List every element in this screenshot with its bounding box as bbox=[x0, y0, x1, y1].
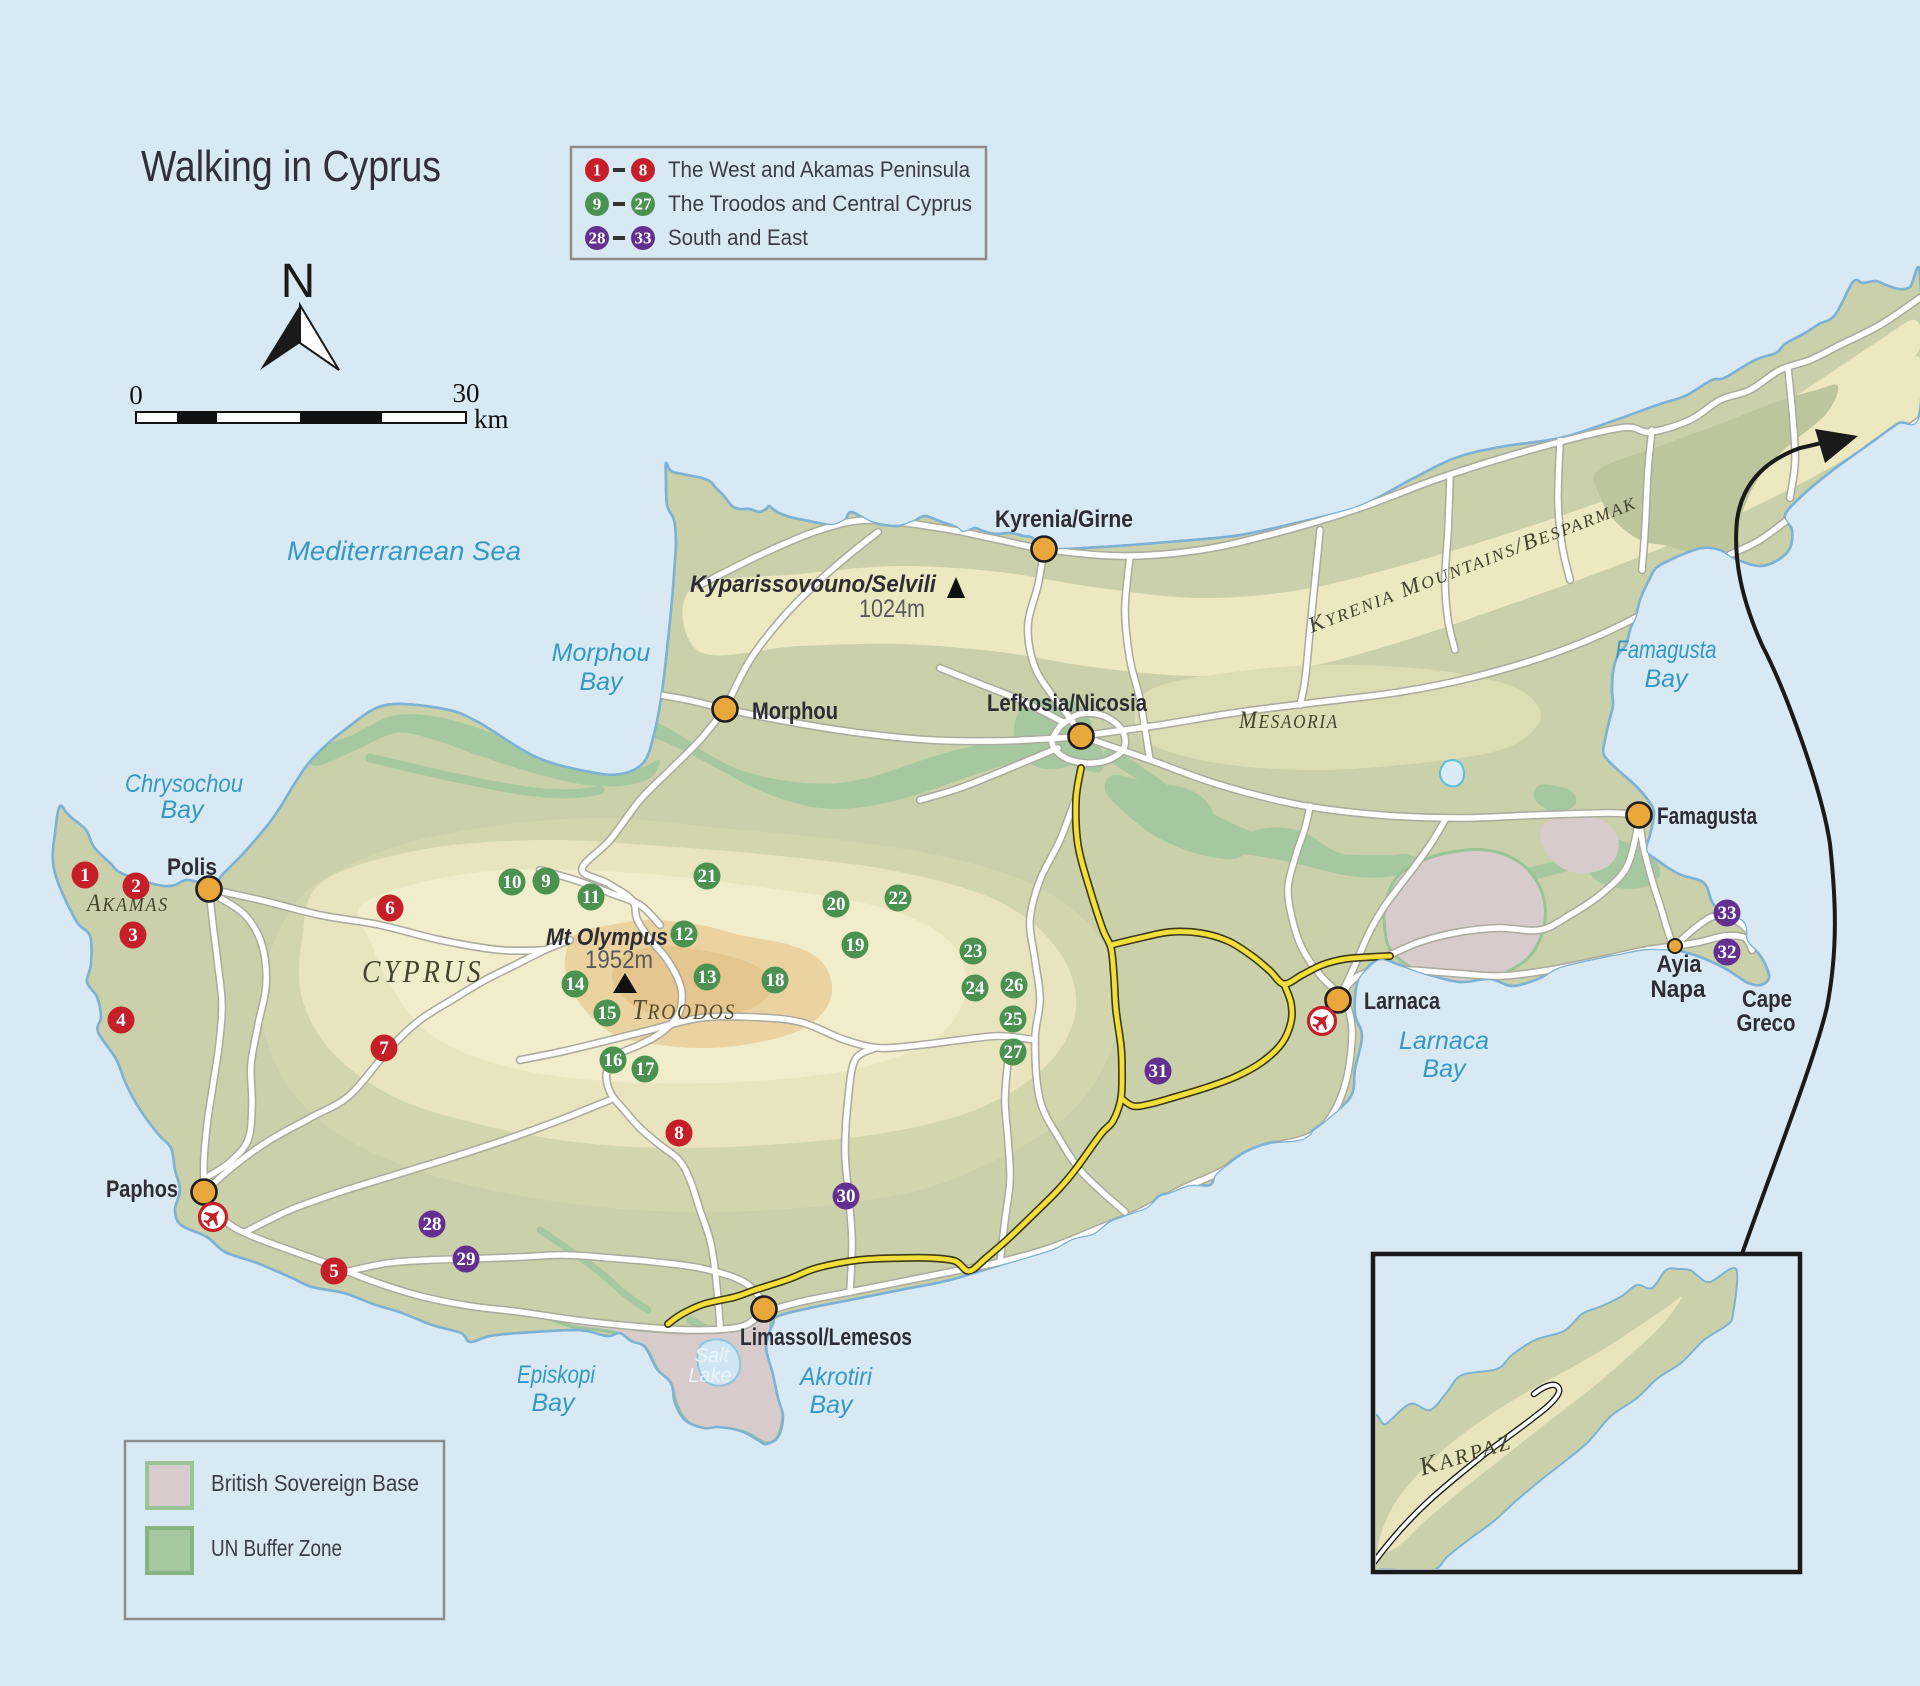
svg-text:Paphos: Paphos bbox=[106, 1176, 178, 1203]
svg-text:Kyparissovouno/Selvili: Kyparissovouno/Selvili bbox=[690, 571, 937, 598]
svg-text:Bay: Bay bbox=[579, 668, 624, 696]
svg-text:2: 2 bbox=[131, 876, 141, 897]
svg-text:Bay: Bay bbox=[1644, 665, 1689, 693]
svg-text:Bay: Bay bbox=[160, 796, 205, 824]
svg-text:Greco: Greco bbox=[1737, 1010, 1796, 1037]
svg-text:27: 27 bbox=[635, 195, 653, 214]
svg-text:17: 17 bbox=[636, 1059, 656, 1080]
svg-text:18: 18 bbox=[766, 970, 785, 991]
svg-text:Morphou: Morphou bbox=[552, 639, 651, 667]
svg-text:10: 10 bbox=[503, 872, 522, 893]
svg-text:Kyrenia/Girne: Kyrenia/Girne bbox=[995, 506, 1133, 533]
svg-text:MESAORIA: MESAORIA bbox=[1238, 707, 1339, 734]
svg-text:Episkopi: Episkopi bbox=[517, 1361, 596, 1389]
svg-text:23: 23 bbox=[964, 941, 983, 962]
svg-text:0: 0 bbox=[129, 380, 143, 410]
svg-text:24: 24 bbox=[966, 978, 986, 999]
svg-text:26: 26 bbox=[1005, 975, 1024, 996]
svg-text:11: 11 bbox=[582, 887, 600, 908]
svg-text:1: 1 bbox=[593, 161, 602, 180]
svg-text:Napa: Napa bbox=[1651, 976, 1707, 1003]
svg-text:20: 20 bbox=[827, 894, 846, 915]
svg-text:16: 16 bbox=[604, 1050, 623, 1071]
svg-text:25: 25 bbox=[1004, 1009, 1023, 1030]
svg-text:TROODOS: TROODOS bbox=[632, 995, 736, 1026]
svg-text:CYPRUS: CYPRUS bbox=[362, 953, 484, 989]
svg-text:28: 28 bbox=[423, 1214, 442, 1235]
svg-text:33: 33 bbox=[635, 229, 652, 248]
svg-text:Cape: Cape bbox=[1742, 986, 1792, 1013]
svg-text:6: 6 bbox=[385, 898, 395, 919]
svg-text:21: 21 bbox=[698, 866, 717, 887]
svg-text:8: 8 bbox=[639, 161, 648, 180]
svg-text:5: 5 bbox=[329, 1261, 339, 1282]
svg-text:Chrysochou: Chrysochou bbox=[125, 770, 243, 798]
svg-text:33: 33 bbox=[1718, 903, 1737, 924]
svg-text:9: 9 bbox=[593, 195, 602, 214]
svg-text:4: 4 bbox=[116, 1010, 126, 1031]
svg-text:Bay: Bay bbox=[809, 1391, 854, 1419]
svg-text:28: 28 bbox=[589, 229, 606, 248]
svg-text:British Sovereign Base: British Sovereign Base bbox=[211, 1470, 419, 1496]
svg-text:The West and Akamas Peninsula: The West and Akamas Peninsula bbox=[668, 157, 971, 182]
svg-text:Walking in Cyprus: Walking in Cyprus bbox=[141, 142, 441, 191]
svg-text:30: 30 bbox=[837, 1186, 856, 1207]
svg-text:12: 12 bbox=[675, 924, 694, 945]
svg-text:Famagusta: Famagusta bbox=[1616, 636, 1717, 664]
svg-text:Akrotiri: Akrotiri bbox=[798, 1363, 873, 1391]
svg-text:22: 22 bbox=[889, 888, 908, 909]
svg-text:UN Buffer Zone: UN Buffer Zone bbox=[211, 1535, 342, 1561]
svg-text:km: km bbox=[474, 404, 509, 434]
svg-text:3: 3 bbox=[128, 925, 138, 946]
svg-text:Salt: Salt bbox=[695, 1345, 731, 1367]
svg-text:19: 19 bbox=[846, 935, 865, 956]
svg-text:Morphou: Morphou bbox=[752, 698, 838, 725]
svg-text:Polis: Polis bbox=[167, 854, 217, 881]
svg-text:Mediterranean Sea: Mediterranean Sea bbox=[287, 536, 521, 566]
svg-text:1: 1 bbox=[80, 865, 90, 886]
svg-text:8: 8 bbox=[674, 1123, 684, 1144]
svg-text:27: 27 bbox=[1004, 1042, 1024, 1063]
svg-text:14: 14 bbox=[566, 974, 586, 995]
svg-text:Larnaca: Larnaca bbox=[1364, 988, 1441, 1015]
svg-text:15: 15 bbox=[598, 1003, 617, 1024]
svg-text:The Troodos and Central Cyprus: The Troodos and Central Cyprus bbox=[668, 191, 972, 216]
svg-text:Bay: Bay bbox=[1422, 1055, 1467, 1083]
svg-text:1024m: 1024m bbox=[859, 595, 925, 623]
svg-text:Lefkosia/Nicosia: Lefkosia/Nicosia bbox=[987, 690, 1148, 717]
svg-text:29: 29 bbox=[457, 1249, 476, 1270]
svg-text:13: 13 bbox=[698, 967, 717, 988]
svg-text:Ayia: Ayia bbox=[1657, 951, 1703, 978]
svg-text:Lake: Lake bbox=[688, 1365, 731, 1387]
svg-text:32: 32 bbox=[1718, 942, 1737, 963]
svg-text:N: N bbox=[281, 255, 316, 308]
svg-text:Famagusta: Famagusta bbox=[1657, 803, 1758, 830]
svg-text:31: 31 bbox=[1149, 1061, 1168, 1082]
svg-text:Limassol/Lemesos: Limassol/Lemesos bbox=[740, 1324, 912, 1351]
svg-text:1952m: 1952m bbox=[585, 946, 653, 974]
svg-text:South and East: South and East bbox=[668, 225, 808, 250]
svg-text:7: 7 bbox=[379, 1038, 389, 1059]
svg-text:Bay: Bay bbox=[531, 1389, 576, 1417]
svg-text:9: 9 bbox=[541, 871, 551, 892]
svg-text:Larnaca: Larnaca bbox=[1399, 1027, 1489, 1055]
